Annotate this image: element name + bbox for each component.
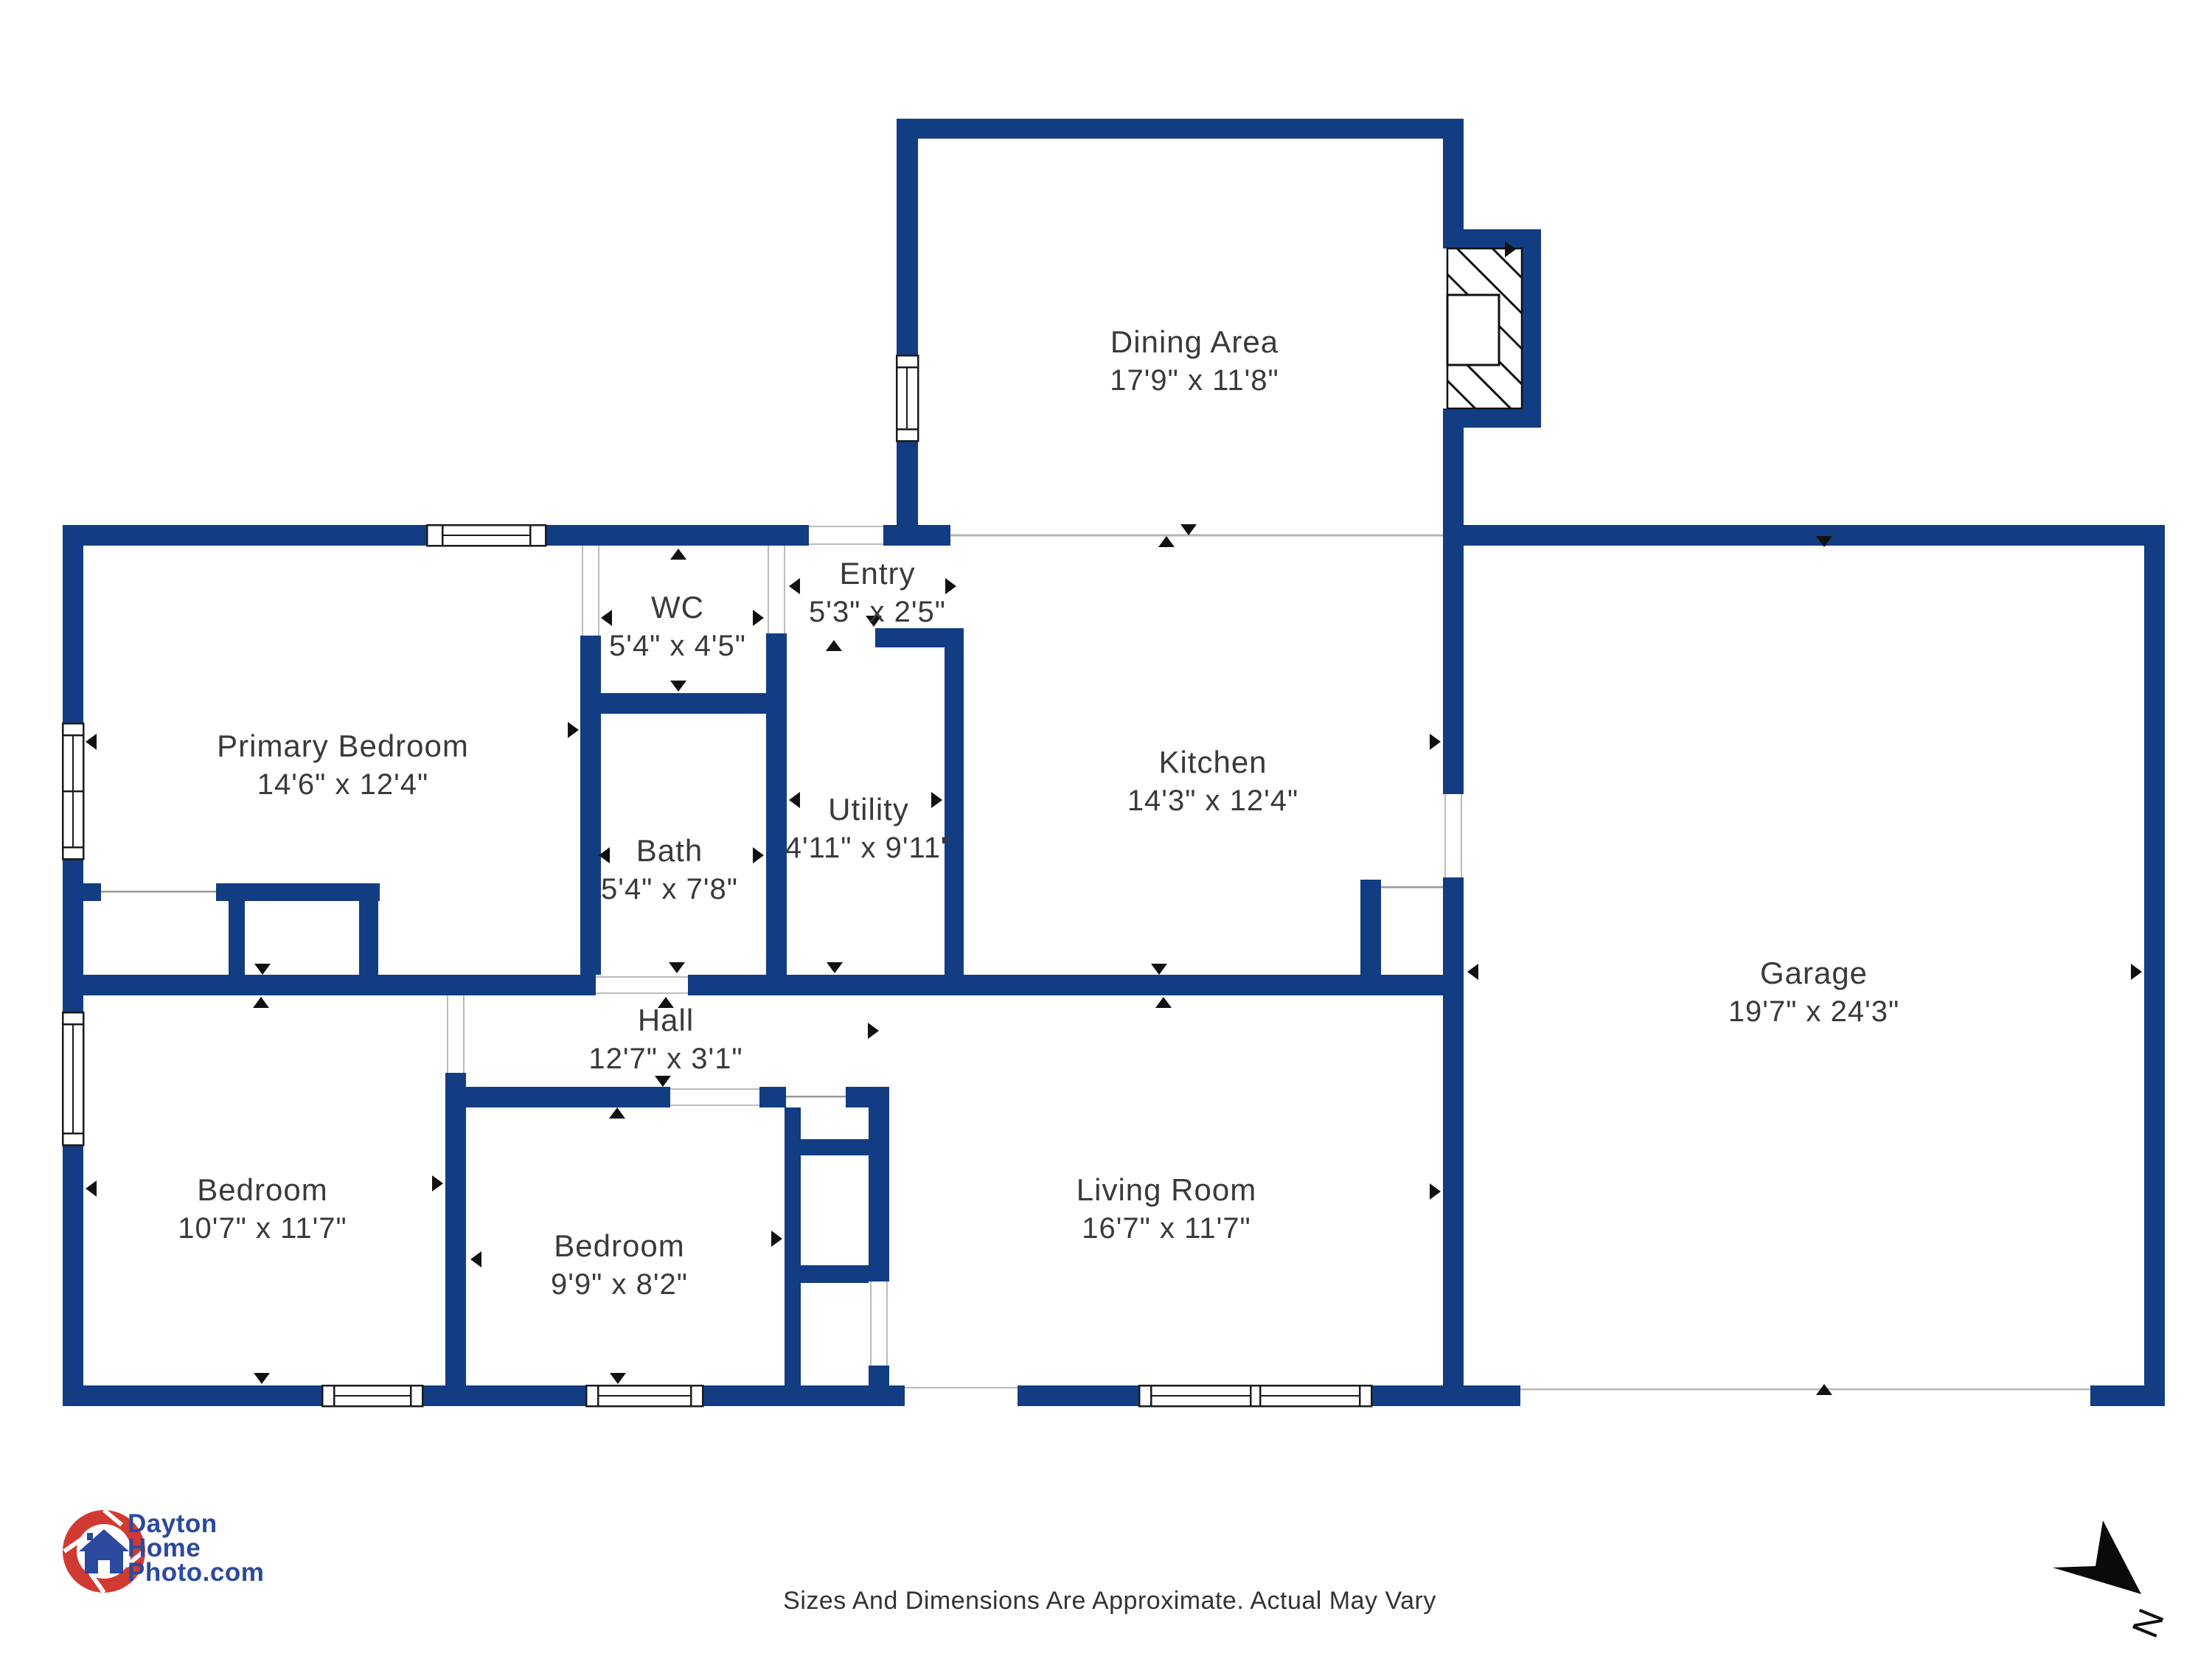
logo-line-2: Home [128, 1536, 264, 1560]
room-name: Bedroom [551, 1227, 688, 1265]
dimension-arrow-icon [254, 964, 271, 975]
dimension-arrow-icon [253, 997, 269, 1008]
dimension-arrow-icon [86, 734, 97, 750]
room-name: Utility [785, 790, 952, 829]
room-label-wc: WC 5'4" x 4'5" [609, 588, 746, 665]
room-label-kitchen: Kitchen 14'3" x 12'4" [1127, 743, 1298, 820]
dimension-arrow-icon [1158, 536, 1175, 547]
logo-line-3: Photo.com [128, 1560, 264, 1585]
room-name: Living Room [1077, 1171, 1256, 1209]
room-dims: 19'7" x 24'3" [1728, 992, 1899, 1031]
room-dims: 5'3" x 2'5" [809, 593, 946, 631]
disclaimer-text: Sizes And Dimensions Are Approximate. Ac… [783, 1587, 1436, 1615]
room-name: Entry [809, 554, 946, 593]
room-dims: 5'4" x 7'8" [601, 870, 738, 908]
room-label-bath: Bath 5'4" x 7'8" [601, 832, 738, 908]
north-arrow: N [2053, 1520, 2172, 1643]
logo: Dayton Home Photo.com [63, 1507, 372, 1618]
room-dims: 4'11" x 9'11" [785, 829, 952, 867]
room-name: Bedroom [178, 1171, 347, 1209]
dimension-arrow-icon [789, 578, 800, 594]
room-dims: 17'9" x 11'8" [1110, 361, 1279, 400]
room-name: Garage [1728, 954, 1899, 992]
north-arrow-icon [2053, 1520, 2141, 1594]
dimension-arrow-icon [610, 1373, 626, 1384]
room-label-garage: Garage 19'7" x 24'3" [1728, 954, 1899, 1031]
dimension-arrow-icon [827, 962, 843, 973]
dimension-arrow-icon [670, 549, 686, 560]
room-name: WC [609, 588, 746, 627]
room-label-living-room: Living Room 16'7" x 11'7" [1077, 1171, 1256, 1248]
room-name: Hall [588, 1001, 742, 1040]
floor-plan-drawing: N [0, 0, 2212, 1659]
room-label-entry: Entry 5'3" x 2'5" [809, 554, 946, 631]
firebox [1447, 295, 1499, 365]
room-dims: 12'7" x 3'1" [588, 1040, 742, 1078]
dimension-arrow-icon [670, 681, 686, 692]
room-name: Dining Area [1110, 323, 1279, 361]
dimension-arrow-icon [1430, 734, 1441, 750]
dimension-arrow-icon [1155, 997, 1172, 1008]
dimension-arrow-icon [609, 1107, 625, 1119]
dimension-arrow-icon [470, 1251, 481, 1267]
room-name: Kitchen [1127, 743, 1298, 782]
dimension-arrow-icon [669, 962, 685, 973]
room-label-primary-bedroom: Primary Bedroom 14'6" x 12'4" [217, 727, 469, 804]
dimension-arrow-icon [753, 610, 764, 626]
room-label-hall: Hall 12'7" x 3'1" [588, 1001, 742, 1078]
room-label-bedroom-middle: Bedroom 9'9" x 8'2" [551, 1227, 688, 1304]
room-dims: 9'9" x 8'2" [551, 1265, 688, 1304]
fireplace [1447, 248, 1522, 408]
logo-line-1: Dayton [128, 1512, 264, 1536]
room-dims: 16'7" x 11'7" [1077, 1209, 1256, 1248]
room-label-dining-area: Dining Area 17'9" x 11'8" [1110, 323, 1279, 400]
dimension-arrow-icon [1180, 524, 1197, 535]
dimension-arrow-icon [2131, 964, 2142, 980]
dimension-arrow-icon [826, 640, 842, 651]
dimension-arrow-icon [753, 847, 764, 863]
dimension-arrow-icon [868, 1023, 879, 1039]
room-name: Primary Bedroom [217, 727, 469, 765]
room-dims: 14'3" x 12'4" [1127, 782, 1298, 820]
north-label: N [2124, 1603, 2171, 1643]
dimension-arrow-icon [86, 1180, 97, 1197]
dimension-arrow-icon [1467, 964, 1478, 980]
room-label-utility: Utility 4'11" x 9'11" [785, 790, 952, 867]
room-name: Bath [601, 832, 738, 870]
dimension-arrow-icon [771, 1231, 782, 1247]
room-label-bedroom-left: Bedroom 10'7" x 11'7" [178, 1171, 347, 1248]
dimension-arrow-icon [945, 578, 956, 594]
dimension-arrow-icon [1151, 964, 1167, 975]
floor-plan: N Dining Area 17'9" x 11'8" Entry 5 [0, 0, 2212, 1659]
dimension-arrow-icon [432, 1175, 443, 1192]
dimension-arrow-icon [568, 722, 579, 738]
room-dims: 10'7" x 11'7" [178, 1209, 347, 1248]
room-dims: 5'4" x 4'5" [609, 627, 746, 665]
dimension-arrow-icon [254, 1373, 270, 1384]
dimension-arrow-icon [1430, 1183, 1441, 1200]
logo-text: Dayton Home Photo.com [128, 1512, 264, 1585]
room-dims: 14'6" x 12'4" [217, 765, 469, 804]
